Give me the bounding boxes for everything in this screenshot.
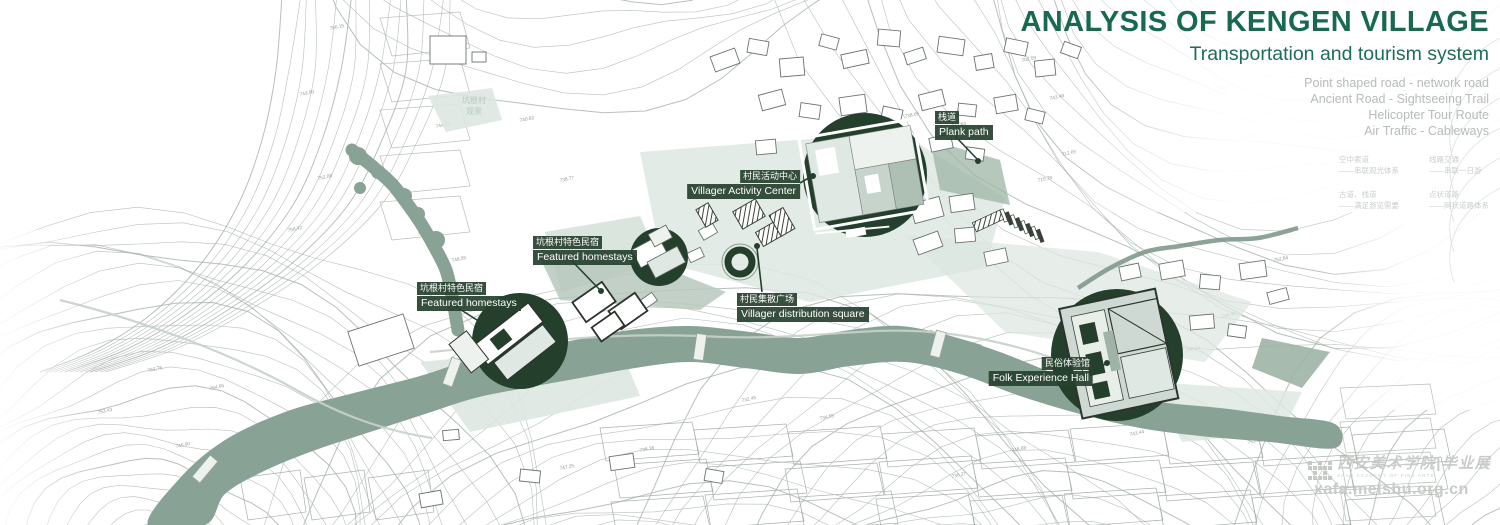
svg-text:745.90: 745.90 <box>175 441 191 450</box>
svg-text:758.42: 758.42 <box>287 225 303 234</box>
svg-text:732.45: 732.45 <box>741 395 757 404</box>
legend-line: Helicopter Tour Route <box>1020 107 1489 123</box>
legend-cn-item: 古道、栈道——满足游览需要 <box>1339 189 1399 212</box>
watermark-school-name: 西安美术学院|毕业展 <box>1337 456 1491 472</box>
title-block: ANALYSIS OF KENGEN VILLAGE Transportatio… <box>1020 6 1489 211</box>
svg-text:734.55: 734.55 <box>819 413 835 422</box>
svg-text:740.82: 740.82 <box>519 115 535 124</box>
callout-folk-hall <box>1051 289 1183 421</box>
faint-area-name: 观景 <box>466 107 482 117</box>
watermark-school-caption: XI'AN ACADEMY OF FINE ARTS <box>1337 473 1491 478</box>
legend-cn-item: 线路交通——串联一日游 <box>1429 154 1489 177</box>
svg-text:752.08: 752.08 <box>317 173 333 182</box>
svg-text:748.56: 748.56 <box>451 255 467 264</box>
svg-text:766.15: 766.15 <box>329 23 345 32</box>
svg-text:747.25: 747.25 <box>559 463 575 472</box>
svg-text:738.18: 738.18 <box>639 445 655 454</box>
svg-text:764.66: 764.66 <box>209 383 225 392</box>
legend-line: Ancient Road - Sightseeing Trail <box>1020 91 1489 107</box>
svg-text:743.60: 743.60 <box>299 89 315 98</box>
watermark: 西安美术学院|毕业展 XI'AN ACADEMY OF FINE ARTS xa… <box>1308 456 1491 499</box>
faint-area-name: 坑根村 <box>462 96 486 106</box>
legend-line: Point shaped road - network road <box>1020 75 1489 91</box>
svg-text:743.44: 743.44 <box>1129 429 1145 438</box>
svg-text:738.77: 738.77 <box>559 175 575 184</box>
legend-line: Air Traffic - Cableways <box>1020 123 1489 139</box>
page-subtitle: Transportation and tourism system <box>1020 43 1489 66</box>
legend-chinese: 空中索道——串联观光体系线路交通——串联一日游古道、栈道——满足游览需要点状道路… <box>1339 154 1489 211</box>
legend-cn-item: 空中索道——串联观光体系 <box>1339 154 1399 177</box>
svg-text:752.84: 752.84 <box>1273 255 1289 264</box>
page-title: ANALYSIS OF KENGEN VILLAGE <box>1020 6 1489 39</box>
watermark-url: xafa.meishu.org.cn <box>1314 481 1491 499</box>
svg-text:736.27: 736.27 <box>951 471 967 480</box>
legend-cn-item: 点状道路——网状道路体系 <box>1429 189 1489 212</box>
legend-english: Point shaped road - network roadAncient … <box>1020 75 1489 139</box>
watermark-qr-icon <box>1308 456 1332 480</box>
left-fade-overlay <box>0 230 100 525</box>
svg-text:762.78: 762.78 <box>147 365 163 374</box>
poster-canvas: 744.28740.82738.77735.58744.26748.56743.… <box>0 0 1500 525</box>
